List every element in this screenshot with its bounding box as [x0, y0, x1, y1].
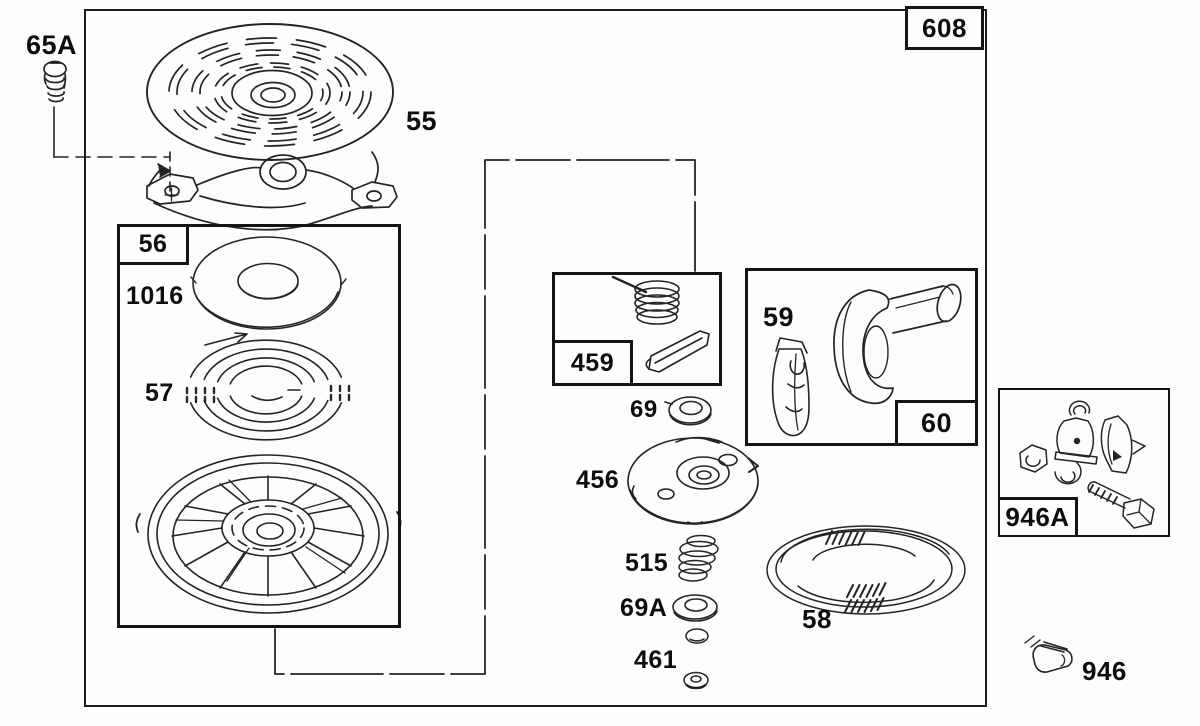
part-label-57: 57 — [145, 381, 174, 406]
callout-box-946a-label: 946A — [1000, 497, 1078, 535]
parts-diagram-page: 608 56 459 60 946A 65A 55 1016 57 69 59 … — [0, 0, 1200, 726]
part-label-65a: 65A — [26, 32, 77, 59]
callout-box-60-label: 60 — [895, 400, 975, 443]
part-65a-screw-drawing — [44, 62, 66, 102]
part-946-ferrule-drawing — [1025, 636, 1072, 672]
callout-box-459-label: 459 — [555, 340, 633, 383]
part-label-69: 69 — [630, 398, 658, 422]
part-label-456: 456 — [576, 468, 619, 493]
part-label-946: 946 — [1082, 658, 1127, 684]
callout-box-946a: 946A — [998, 388, 1170, 537]
part-label-59: 59 — [763, 304, 794, 331]
part-label-58: 58 — [802, 606, 832, 632]
callout-box-60: 60 — [745, 268, 978, 446]
part-label-69a: 69A — [620, 596, 667, 621]
part-label-515: 515 — [625, 551, 668, 576]
part-label-461: 461 — [634, 648, 677, 673]
callout-box-459: 459 — [552, 272, 722, 386]
part-label-608: 608 — [922, 15, 967, 41]
callout-box-56-label: 56 — [120, 227, 189, 265]
part-label-55: 55 — [406, 108, 437, 135]
callout-box-608: 608 — [905, 6, 984, 50]
part-label-1016: 1016 — [126, 284, 184, 309]
